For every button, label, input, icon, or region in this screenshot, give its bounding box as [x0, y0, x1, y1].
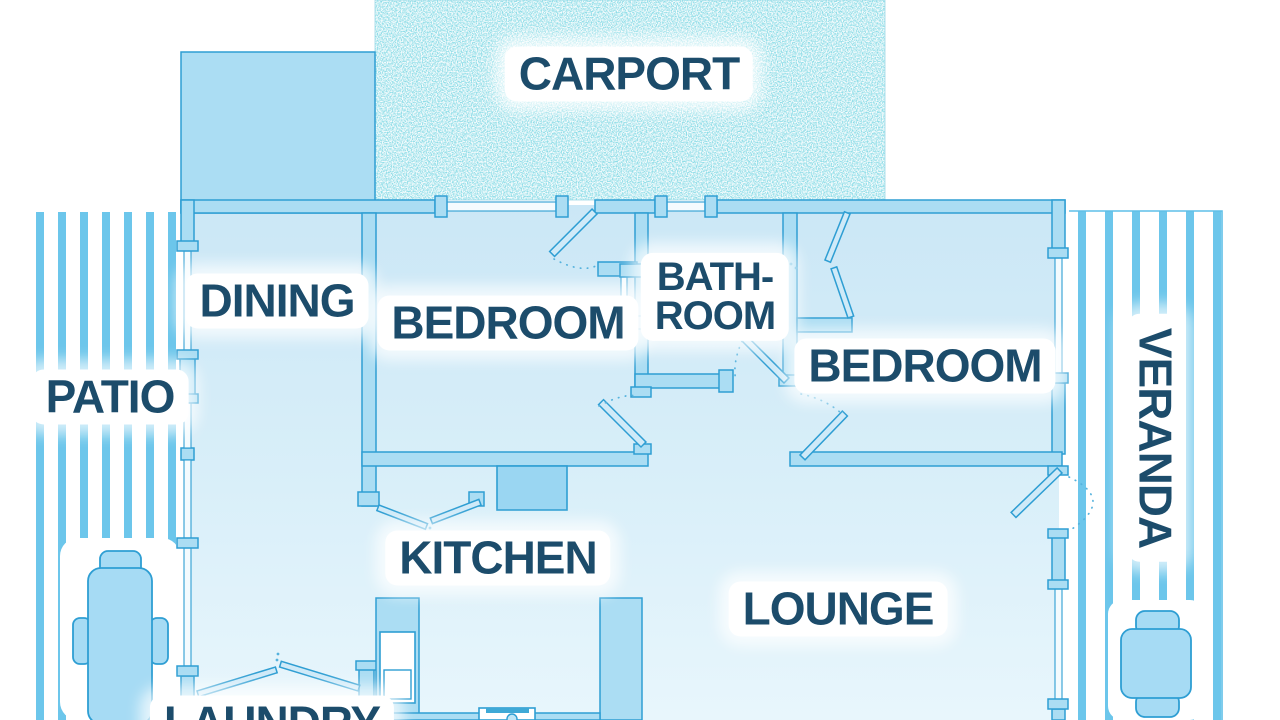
- bedroom2-bottom-wall: [790, 452, 1062, 466]
- patio-table: [88, 568, 152, 720]
- entry-block: [181, 52, 375, 213]
- room-label-lounge: LOUNGE: [729, 581, 948, 636]
- room-label-bedroom-left: BEDROOM: [377, 295, 638, 350]
- sink-faucet: [507, 714, 517, 720]
- bathroom-top-window: [667, 202, 705, 211]
- room-label-bathroom: BATH- ROOM: [641, 253, 789, 341]
- kitchen-counter-right: [600, 598, 642, 720]
- bathroom-label-line2: ROOM: [655, 297, 775, 336]
- lounge-right-window: [1055, 589, 1062, 701]
- floor-plan-svg: .wall{fill:#abddf3;stroke:#2e9ed3;stroke…: [0, 0, 1280, 720]
- bedroom2-right-window: [1055, 258, 1062, 375]
- bedroom1-top-window: [447, 202, 556, 211]
- kitchen-sink-rim: [486, 708, 529, 713]
- bedroom1-bottom-wall: [362, 452, 648, 466]
- bedroom2-closet-stub: [797, 318, 852, 332]
- veranda-table: [1121, 629, 1191, 698]
- dining-window-3: [184, 460, 191, 538]
- room-label-dining: DINING: [186, 273, 369, 328]
- room-label-kitchen: KITCHEN: [385, 530, 610, 585]
- room-label-patio: PATIO: [32, 369, 189, 424]
- kitchen-appliance: [497, 466, 567, 510]
- bathroom-label-line1: BATH-: [655, 258, 775, 297]
- room-label-carport: CARPORT: [505, 46, 753, 101]
- room-label-laundry: LAUNDRY: [150, 695, 394, 720]
- room-label-bedroom-right: BEDROOM: [794, 338, 1055, 393]
- dining-window-4: [184, 548, 191, 666]
- bathroom-bottom-wall: [635, 374, 722, 388]
- room-label-veranda: VERANDA: [1127, 314, 1182, 562]
- floor-plan: .wall{fill:#abddf3;stroke:#2e9ed3;stroke…: [0, 0, 1280, 720]
